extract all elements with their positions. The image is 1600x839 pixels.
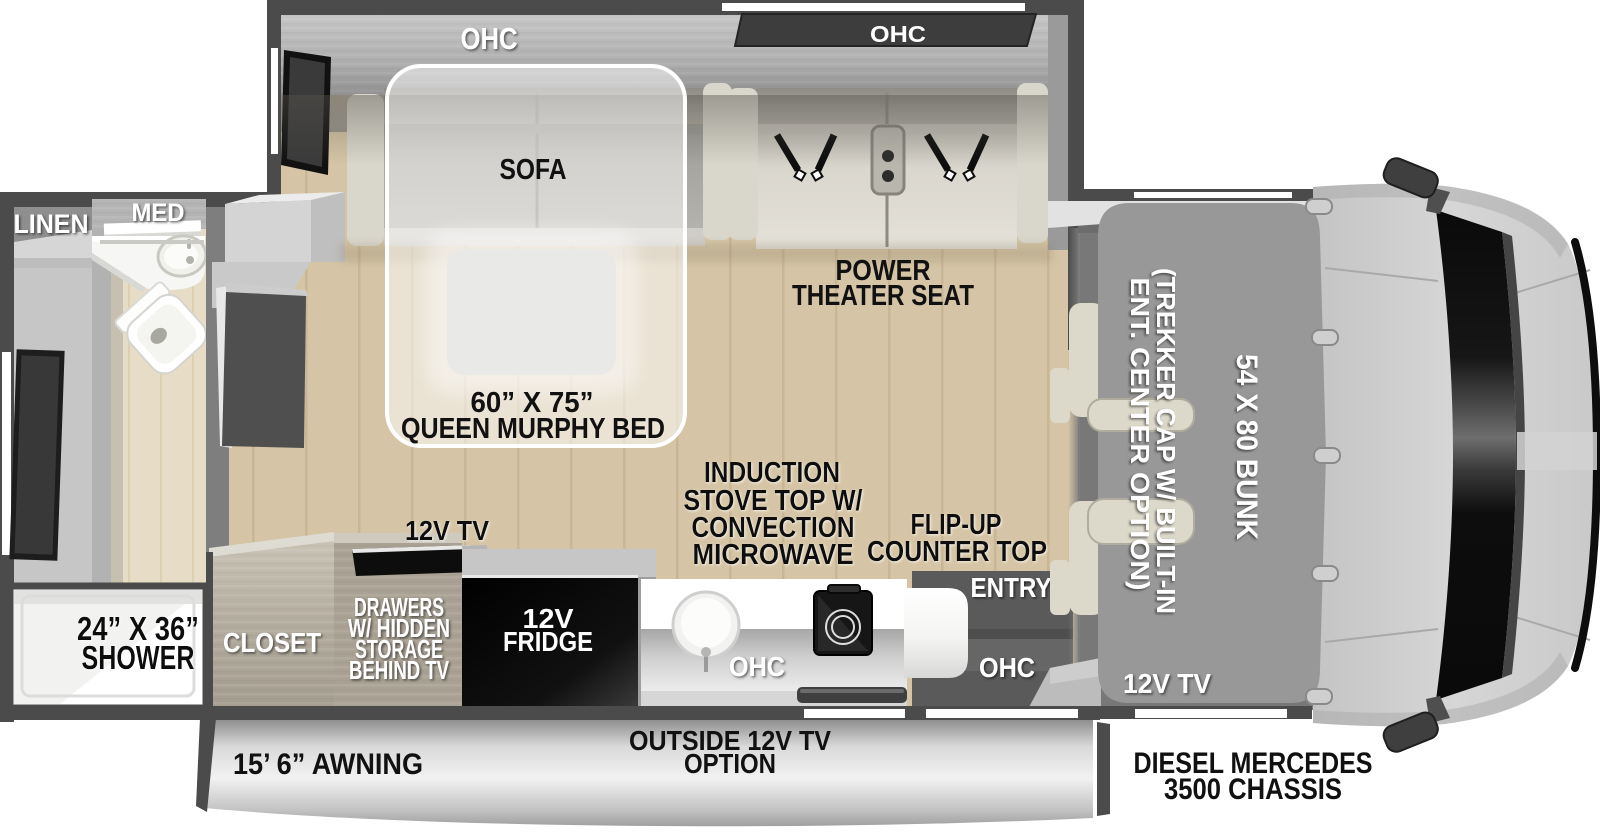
svg-text:OHC: OHC	[870, 21, 926, 47]
svg-text:CLOSET: CLOSET	[223, 627, 321, 658]
svg-text:ENT. CENTER OPTION): ENT. CENTER OPTION)	[1125, 278, 1155, 591]
svg-text:THEATER SEAT: THEATER SEAT	[792, 280, 974, 312]
svg-text:OHC: OHC	[979, 652, 1035, 683]
svg-text:BEHIND TV: BEHIND TV	[349, 655, 449, 685]
svg-text:OHC: OHC	[729, 651, 785, 682]
svg-text:12V TV: 12V TV	[1123, 668, 1211, 699]
svg-text:MED: MED	[132, 199, 185, 227]
svg-text:12V TV: 12V TV	[405, 515, 489, 546]
svg-text:FRIDGE: FRIDGE	[503, 626, 593, 657]
svg-text:15’ 6” AWNING: 15’ 6” AWNING	[233, 748, 423, 781]
svg-text:MICROWAVE: MICROWAVE	[693, 539, 854, 571]
svg-text:SHOWER: SHOWER	[82, 639, 195, 676]
svg-text:3500 CHASSIS: 3500 CHASSIS	[1164, 773, 1342, 806]
svg-text:OHC: OHC	[461, 21, 518, 56]
svg-text:54 X 80 BUNK: 54 X 80 BUNK	[1230, 354, 1263, 540]
svg-text:OPTION: OPTION	[684, 748, 776, 779]
svg-text:LINEN: LINEN	[14, 209, 89, 239]
svg-text:SOFA: SOFA	[500, 154, 567, 186]
svg-text:ENTRY: ENTRY	[971, 572, 1052, 603]
svg-text:QUEEN MURPHY BED: QUEEN MURPHY BED	[401, 413, 665, 445]
svg-text:COUNTER TOP: COUNTER TOP	[867, 536, 1047, 568]
